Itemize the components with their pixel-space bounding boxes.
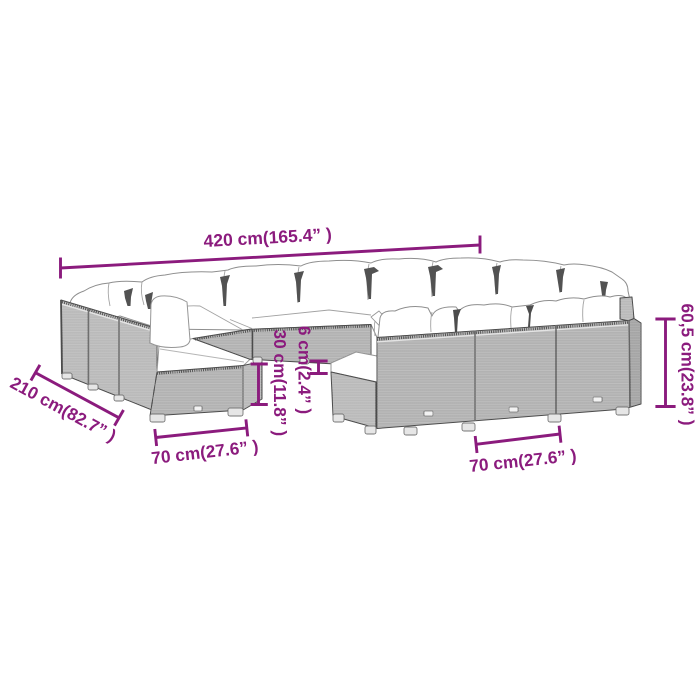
svg-text:6 cm(2.4” ): 6 cm(2.4” ) (295, 326, 315, 414)
svg-text:30 cm(11.8” ): 30 cm(11.8” ) (270, 329, 290, 436)
svg-text:70 cm(27.6” ): 70 cm(27.6” ) (150, 436, 259, 468)
svg-text:70 cm(27.6” ): 70 cm(27.6” ) (468, 445, 577, 476)
svg-text:60,5 cm(23.8” ): 60,5 cm(23.8” ) (678, 304, 698, 426)
svg-text:420 cm(165.4” ): 420 cm(165.4” ) (203, 224, 332, 251)
